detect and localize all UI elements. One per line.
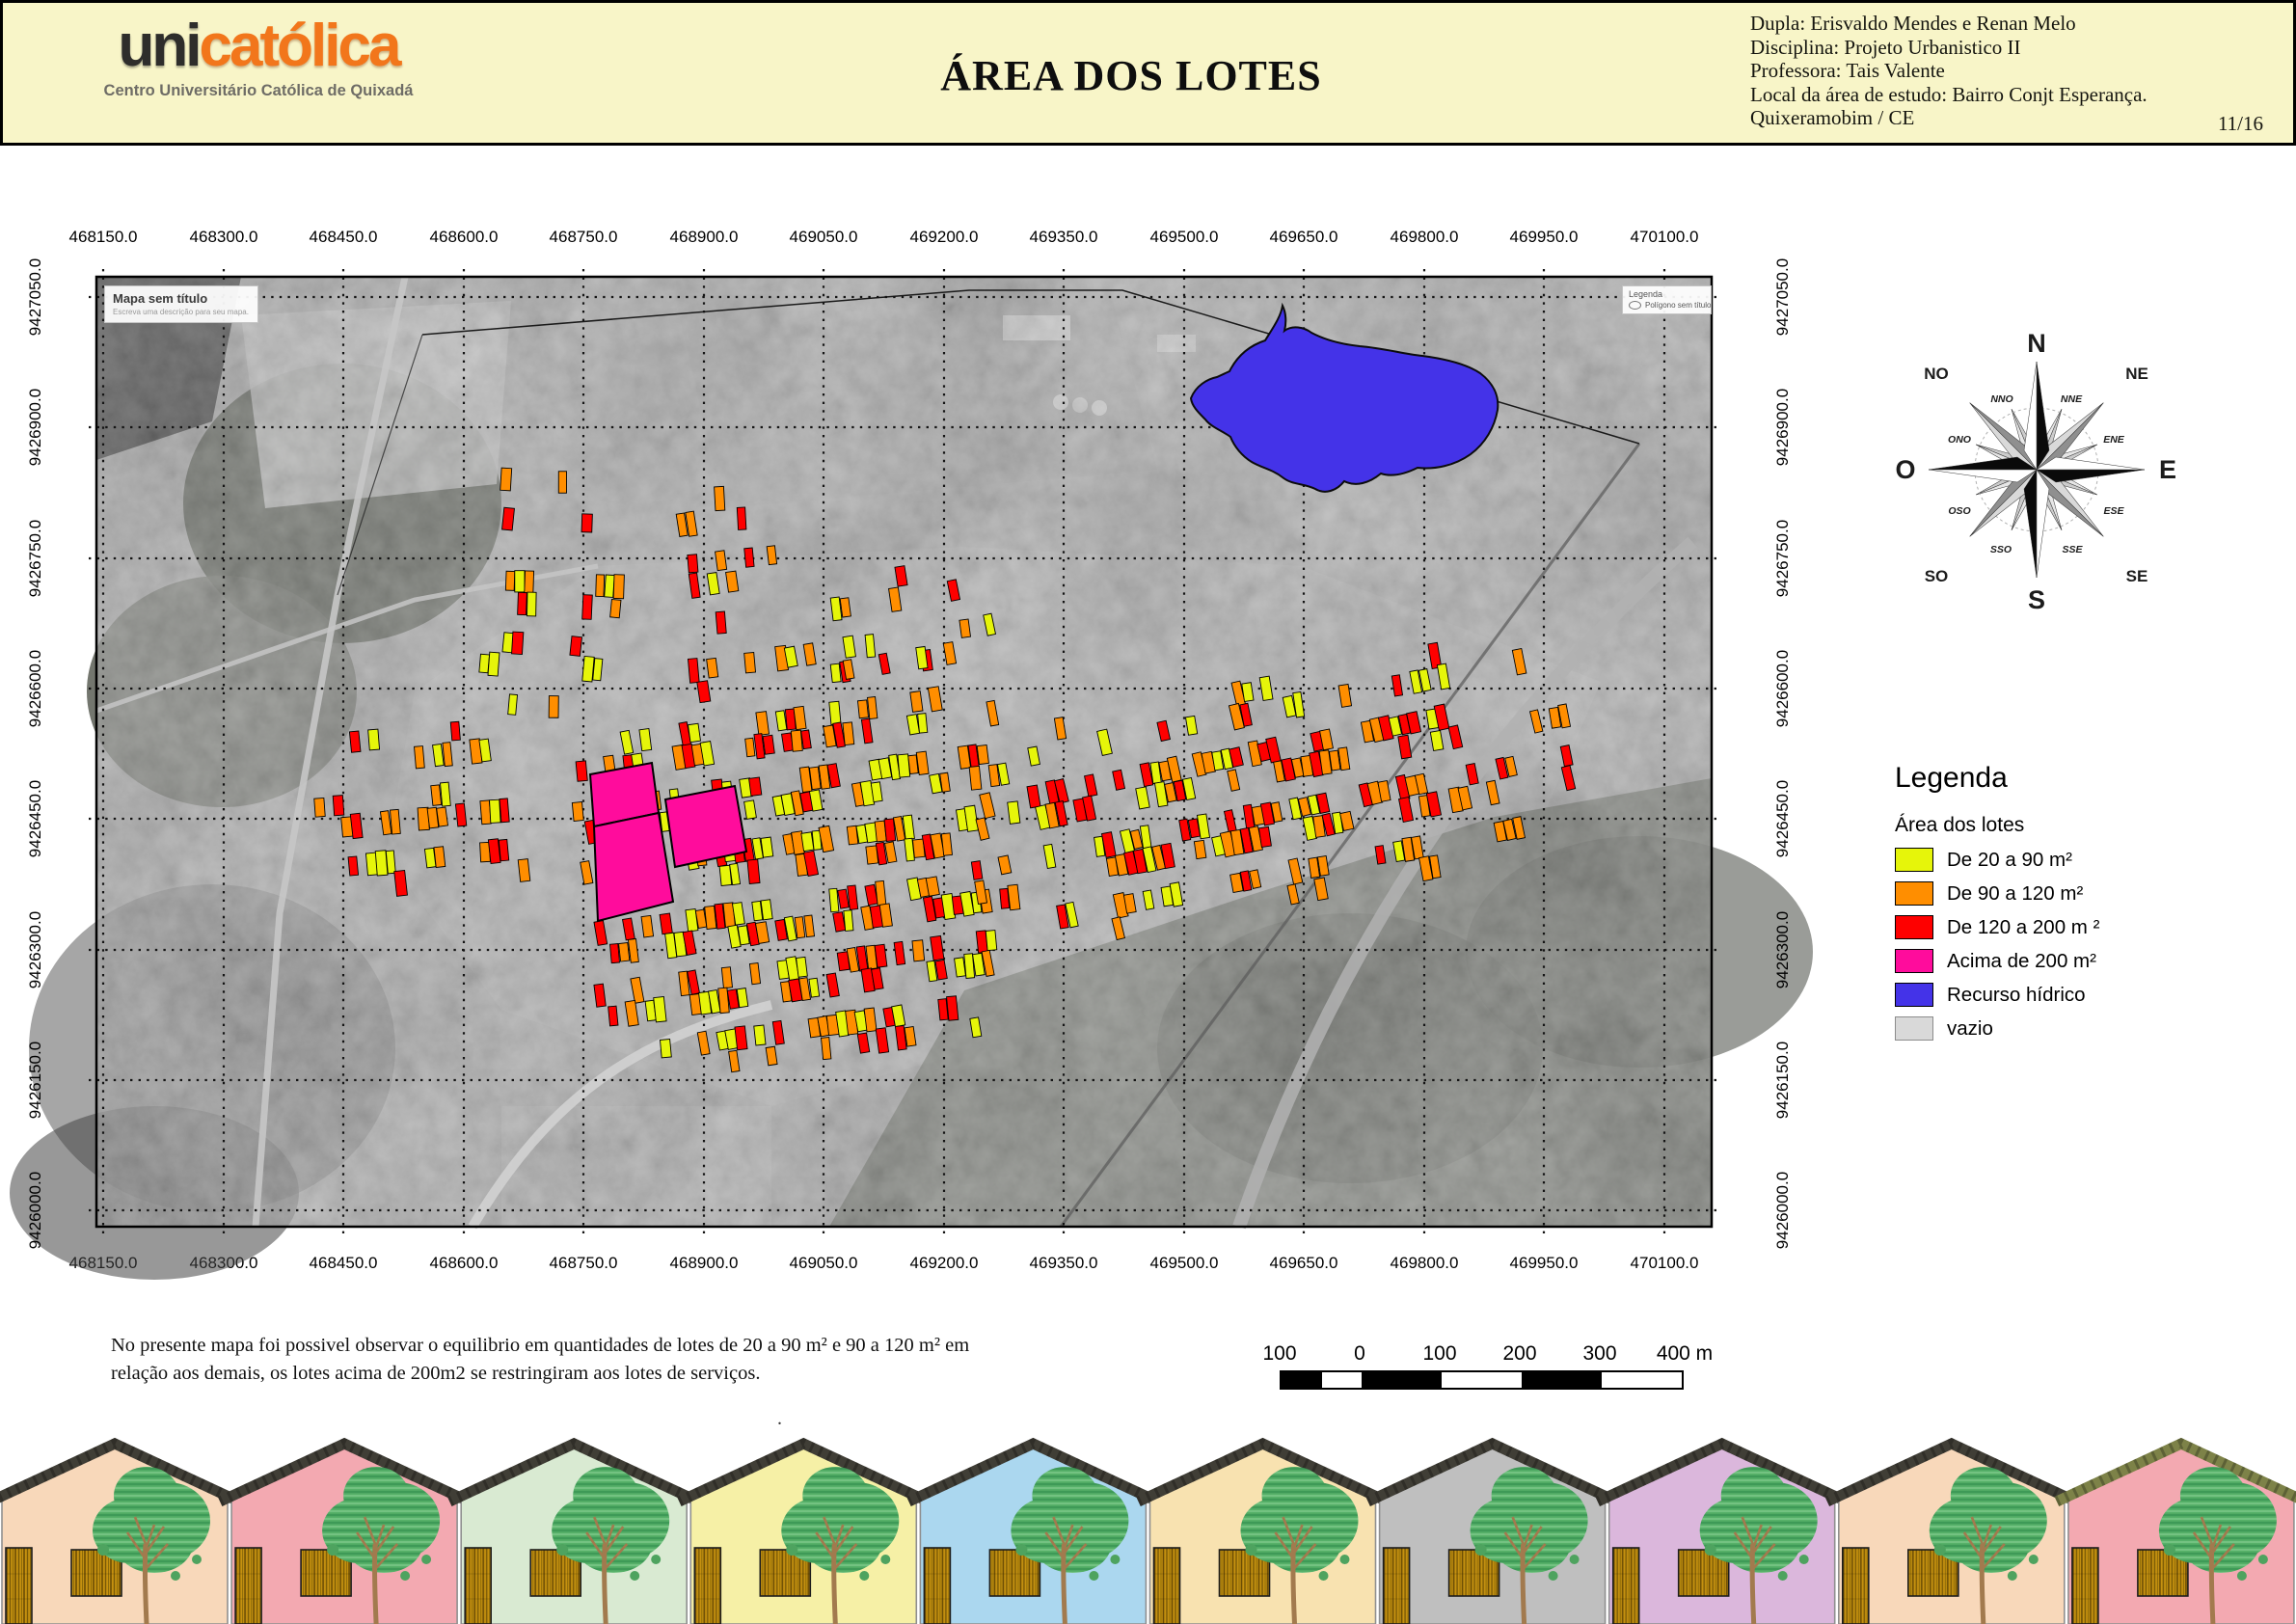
x-tick-label: 468600.0	[430, 228, 499, 247]
info-line: Local da área de estudo: Bairro Conjt Es…	[1750, 83, 2276, 107]
project-info-block: Dupla: Erisvaldo Mendes e Renan MeloDisc…	[1750, 12, 2276, 130]
x-tick-label: 469050.0	[790, 228, 858, 247]
scale-segment	[1282, 1372, 1322, 1388]
y-tick-label: 9426750.0	[26, 520, 45, 597]
y-tick-label: 9426600.0	[26, 650, 45, 727]
y-tick-label: 9426600.0	[1773, 650, 1793, 727]
logo-wordmark: unicatólica	[51, 16, 466, 76]
logo-catolica-text: católica	[200, 13, 399, 79]
scale-segment	[1362, 1372, 1442, 1388]
legend-item: De 120 a 200 m ²	[1895, 914, 2281, 940]
page-number: 11/16	[2218, 112, 2263, 136]
x-tick-label: 469800.0	[1391, 228, 1459, 247]
x-tick-label: 468450.0	[310, 1254, 378, 1273]
poster-page: unicatólica Centro Universitário Católic…	[0, 0, 2296, 1624]
compass-label: NO	[1924, 365, 1949, 383]
aerial-map	[96, 277, 1712, 1227]
x-tick-label: 469500.0	[1150, 228, 1219, 247]
legend-item: Acima de 200 m²	[1895, 948, 2281, 974]
legend-item: vazio	[1895, 1015, 2281, 1042]
compass-label: NE	[2125, 365, 2148, 383]
scale-segment	[1442, 1372, 1522, 1388]
compass-label: ENE	[2103, 434, 2125, 446]
x-tick-label: 468750.0	[550, 1254, 618, 1273]
legend-swatch	[1895, 915, 1933, 939]
x-tick-label: 469500.0	[1150, 1254, 1219, 1273]
logo-uni-text: uni	[119, 13, 200, 79]
y-tick-label: 9426300.0	[26, 911, 45, 988]
y-tick-label: 9426450.0	[1773, 780, 1793, 857]
mini-legend-item: Polígono sem título	[1645, 301, 1711, 310]
compass-label: ESE	[2103, 505, 2124, 517]
scale-segment	[1322, 1372, 1363, 1388]
compass-label: SSE	[2062, 544, 2083, 555]
compass-label: ONO	[1948, 434, 1971, 446]
legend-label: Recurso hídrico	[1947, 984, 2086, 1007]
info-line: Quixeramobim / CE	[1750, 106, 2276, 130]
untitled-map-subtitle: Escreva uma descrição para seu mapa.	[113, 308, 250, 316]
x-tick-label: 468600.0	[430, 1254, 499, 1273]
compass-label: OSO	[1948, 505, 1970, 517]
scale-label: 0	[1354, 1342, 1365, 1366]
x-tick-label: 469200.0	[910, 1254, 979, 1273]
info-line: Professora: Tais Valente	[1750, 59, 2276, 83]
compass-label: SE	[2126, 567, 2148, 585]
x-tick-label: 469950.0	[1510, 1254, 1579, 1273]
scale-label: 200	[1502, 1342, 1536, 1366]
legend-items: De 20 a 90 m²De 90 a 120 m²De 120 a 200 …	[1895, 847, 2281, 1042]
compass-label: NNE	[2061, 393, 2083, 405]
info-line: Disciplina: Projeto Urbanistico II	[1750, 36, 2276, 60]
y-tick-label: 9426900.0	[26, 389, 45, 466]
compass-label: E	[2159, 455, 2176, 484]
legend-label: vazio	[1947, 1017, 1993, 1041]
y-tick-label: 9426450.0	[26, 780, 45, 857]
scale-label: 400 m	[1657, 1342, 1713, 1366]
x-tick-label: 469800.0	[1391, 1254, 1459, 1273]
legend-swatch	[1895, 1016, 1933, 1041]
y-tick-label: 9426300.0	[1773, 911, 1793, 988]
legend-label: De 120 a 200 m ²	[1947, 916, 2099, 939]
legend-item: De 20 a 90 m²	[1895, 847, 2281, 873]
scale-label: 300	[1582, 1342, 1616, 1366]
x-tick-label: 469200.0	[910, 228, 979, 247]
polygon-icon	[1629, 301, 1641, 310]
x-tick-label: 468300.0	[190, 228, 258, 247]
x-tick-label: 468150.0	[69, 228, 138, 247]
compass-label: S	[2028, 585, 2045, 614]
legend-swatch	[1895, 983, 1933, 1007]
x-tick-label: 468900.0	[670, 228, 739, 247]
x-axis-labels-top: 468150.0468300.0468450.0468600.0468750.0…	[0, 228, 2296, 247]
compass-label: O	[1895, 455, 1915, 484]
legend-label: De 20 a 90 m²	[1947, 849, 2072, 872]
compass-label: N	[2027, 329, 2046, 358]
x-tick-label: 470100.0	[1631, 228, 1699, 247]
compass-label: NNO	[1990, 393, 2012, 405]
houses-illustration-band	[0, 1436, 2296, 1624]
legend-swatch	[1895, 881, 1933, 906]
y-tick-label: 9426000.0	[1773, 1172, 1793, 1249]
y-tick-label: 9426150.0	[26, 1042, 45, 1119]
info-line: Dupla: Erisvaldo Mendes e Renan Melo	[1750, 12, 2276, 36]
x-tick-label: 469950.0	[1510, 228, 1579, 247]
unicatolica-logo: unicatólica Centro Universitário Católic…	[51, 16, 466, 100]
y-tick-label: 9426000.0	[26, 1172, 45, 1249]
x-tick-label: 470100.0	[1631, 1254, 1699, 1273]
x-axis-labels-bottom: 468150.0468300.0468450.0468600.0468750.0…	[0, 1254, 2296, 1273]
x-tick-label: 468900.0	[670, 1254, 739, 1273]
y-tick-label: 9426150.0	[1773, 1042, 1793, 1119]
x-tick-label: 469650.0	[1270, 1254, 1338, 1273]
legend-subtitle: Área dos lotes	[1895, 814, 2281, 837]
y-tick-label: 9427050.0	[26, 258, 45, 336]
mini-legend-box: Legenda Polígono sem título	[1622, 285, 1712, 314]
x-tick-label: 468450.0	[310, 228, 378, 247]
legend-swatch	[1895, 949, 1933, 973]
legend-label: Acima de 200 m²	[1947, 950, 2096, 973]
logo-subtitle: Centro Universitário Católica de Quixadá	[51, 82, 466, 100]
x-tick-label: 468750.0	[550, 228, 618, 247]
y-tick-label: 9427050.0	[1773, 258, 1793, 336]
stray-dot: .	[777, 1408, 782, 1430]
compass-rose: NESONESESONONNEENEESESSESSOOSOONONNO	[1877, 325, 2196, 614]
x-tick-label: 469650.0	[1270, 228, 1338, 247]
header-bar: unicatólica Centro Universitário Católic…	[0, 0, 2296, 146]
compass-label: SO	[1925, 567, 1949, 585]
scale-segment	[1602, 1372, 1682, 1388]
map-frame	[96, 277, 1712, 1227]
legend-item: Recurso hídrico	[1895, 982, 2281, 1008]
scale-bar-labels: 1000100200300400 m	[0, 1342, 2296, 1366]
legend-title: Legenda	[1895, 762, 2281, 795]
scale-label: 100	[1262, 1342, 1296, 1366]
y-tick-label: 9426900.0	[1773, 389, 1793, 466]
scale-label: 100	[1422, 1342, 1456, 1366]
legend-label: De 90 a 120 m²	[1947, 882, 2083, 906]
legend-swatch	[1895, 848, 1933, 872]
x-tick-label: 469050.0	[790, 1254, 858, 1273]
scale-segment	[1522, 1372, 1602, 1388]
x-tick-label: 469350.0	[1030, 1254, 1098, 1273]
legend-item: De 90 a 120 m²	[1895, 880, 2281, 907]
mini-legend-title: Legenda	[1629, 289, 1705, 299]
x-tick-label: 469350.0	[1030, 228, 1098, 247]
untitled-map-box: Mapa sem título Escreva uma descrição pa…	[104, 285, 258, 323]
y-tick-label: 9426750.0	[1773, 520, 1793, 597]
legend-panel: Legenda Área dos lotes De 20 a 90 m²De 9…	[1895, 762, 2281, 1042]
page-title: ÁREA DOS LOTES	[794, 51, 1469, 100]
compass-label: SSO	[1990, 544, 2012, 555]
untitled-map-title: Mapa sem título	[113, 291, 250, 306]
scale-bar	[1280, 1370, 1684, 1390]
